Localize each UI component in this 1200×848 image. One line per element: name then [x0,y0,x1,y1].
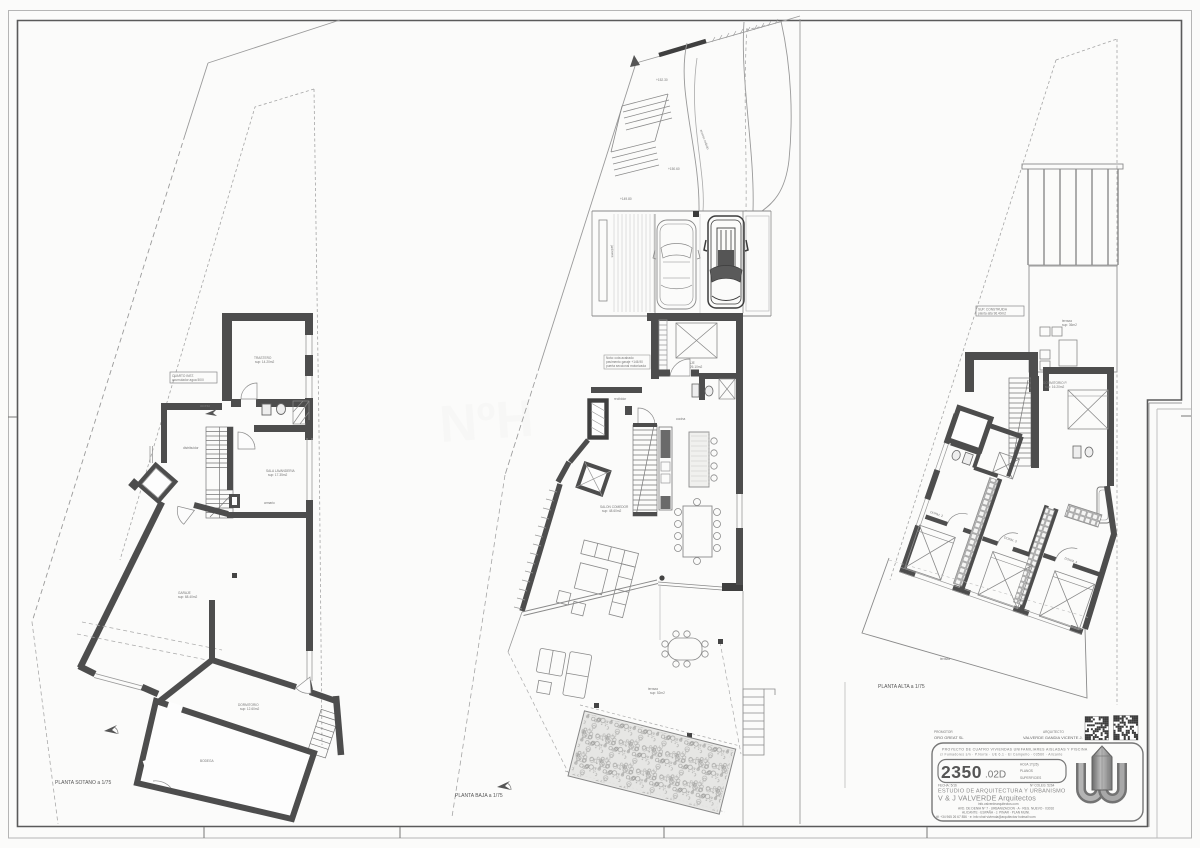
svg-text:sup: 16.20m2: sup: 16.20m2 [1045,385,1065,389]
svg-text:ALICANTE · ESPAÑA · J. PINAR ·: ALICANTE · ESPAÑA · J. PINAR · PLAN MUNI… [962,810,1030,815]
svg-text:BODEGA: BODEGA [200,759,215,763]
svg-text:sup: 17.35m2: sup: 17.35m2 [268,473,288,477]
svg-text:planta alta 96.40m2: planta alta 96.40m2 [978,312,1006,316]
svg-text:PROYECTO DE CUATRO VIVIENDAS U: PROYECTO DE CUATRO VIVIENDAS UNIFAMILIAR… [942,748,1088,752]
svg-text:c/ Fumadores s/n · P.Norte · U: c/ Fumadores s/n · P.Norte · UE 6.1 · El… [940,753,1063,757]
svg-text:terraza: terraza [940,657,950,661]
svg-text:Nº COLEG: 5264: Nº COLEG: 5264 [1030,784,1055,788]
svg-text:puerta seccional motorizada: puerta seccional motorizada [606,364,646,368]
svg-text:PROMOTOR: PROMOTOR [934,730,953,734]
svg-text:sup: 52m2: sup: 52m2 [650,691,665,695]
svg-text:HOJA 1T(26): HOJA 1T(26) [1020,763,1039,767]
svg-text:.02D: .02D [985,770,1006,781]
svg-text:NºH: NºH [438,390,536,454]
svg-text:cocina: cocina [676,417,685,421]
svg-text:ARQUITECTO: ARQUITECTO [1043,730,1064,734]
svg-text:VALVERDE GANDIA VICENTE J.: VALVERDE GANDIA VICENTE J. [1023,735,1083,740]
svg-text:+152.30: +152.30 [656,78,668,82]
svg-text:2350: 2350 [941,762,982,782]
svg-text:sup: 36m2: sup: 36m2 [1062,323,1077,327]
svg-text:FECHA: 5/16: FECHA: 5/16 [938,784,957,788]
svg-text:sup: 48.60m2: sup: 48.60m2 [602,509,622,513]
svg-text:tlf: +34 965 26 67 856 · e: i: tlf: +34 965 26 67 856 · e: info·chat·vi… [936,815,1036,819]
svg-text:sup: 68.40m2: sup: 68.40m2 [178,595,198,599]
svg-text:distribuidor: distribuidor [183,446,200,450]
svg-text:+150.60: +150.60 [668,167,680,171]
svg-text:PLANTA SOTANO a 1/75: PLANTA SOTANO a 1/75 [55,780,111,786]
svg-text:sup: 12.60m2: sup: 12.60m2 [240,707,260,711]
svg-text:recibidor: recibidor [614,397,627,401]
svg-text:SUPERFICIES: SUPERFICIES [1020,776,1041,780]
svg-text:acumulador agua 500l: acumulador agua 500l [172,378,204,382]
svg-text:armario: armario [264,501,275,505]
svg-text:info.valverdearquitectos.com: info.valverdearquitectos.com [978,802,1019,806]
svg-text:acceso: acceso [200,404,210,408]
svg-text:PLANTA ALTA a 1/75: PLANTA ALTA a 1/75 [878,684,925,690]
svg-text:PLANTA BAJA a 1/75: PLANTA BAJA a 1/75 [455,793,503,799]
svg-text:sup: 14.20m2: sup: 14.20m2 [255,360,275,364]
svg-text:ORO GREAT SL: ORO GREAT SL [934,735,964,740]
svg-text:+149.80: +149.80 [620,197,632,201]
svg-text:PLANOS: PLANOS [1020,769,1033,773]
